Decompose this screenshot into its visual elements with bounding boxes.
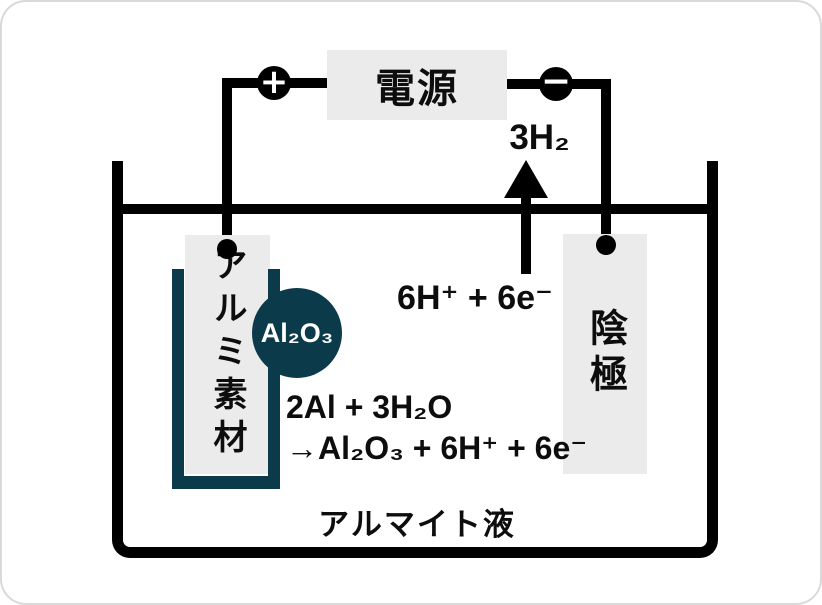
gas-arrow-shaft: [521, 194, 531, 274]
anode-reaction-equation: 2Al + 3H₂O →Al₂O₃ + 6H⁺ + 6e⁻: [286, 387, 587, 469]
ion-label: 6H⁺ + 6e⁻: [375, 278, 575, 318]
equation-line-2: →Al₂O₃ + 6H⁺ + 6e⁻: [286, 428, 587, 469]
liquid-surface-line: [115, 204, 715, 214]
power-supply-label: 電源: [375, 56, 459, 114]
solution-label: アルマイト液: [292, 499, 542, 544]
minus-terminal-icon: −: [539, 67, 573, 101]
anode-terminal-dot: [217, 239, 237, 259]
diagram-canvas: 電源 + − アルミ素材 陰極 Al₂O₃ 3H₂ 6H⁺ + 6e⁻ 2Al …: [0, 0, 822, 605]
plus-symbol: +: [260, 65, 289, 99]
power-supply-box: 電源: [327, 50, 507, 120]
oxide-circle-badge: Al₂O₃: [252, 288, 342, 378]
gas-arrow-icon: [504, 160, 548, 198]
minus-symbol: −: [541, 64, 571, 100]
oxide-label: Al₂O₃: [261, 318, 333, 349]
cathode-terminal-dot: [596, 235, 616, 255]
plus-terminal-icon: +: [257, 66, 291, 100]
equation-line-1: 2Al + 3H₂O: [286, 387, 587, 428]
hydrogen-gas-label: 3H₂: [482, 118, 597, 158]
